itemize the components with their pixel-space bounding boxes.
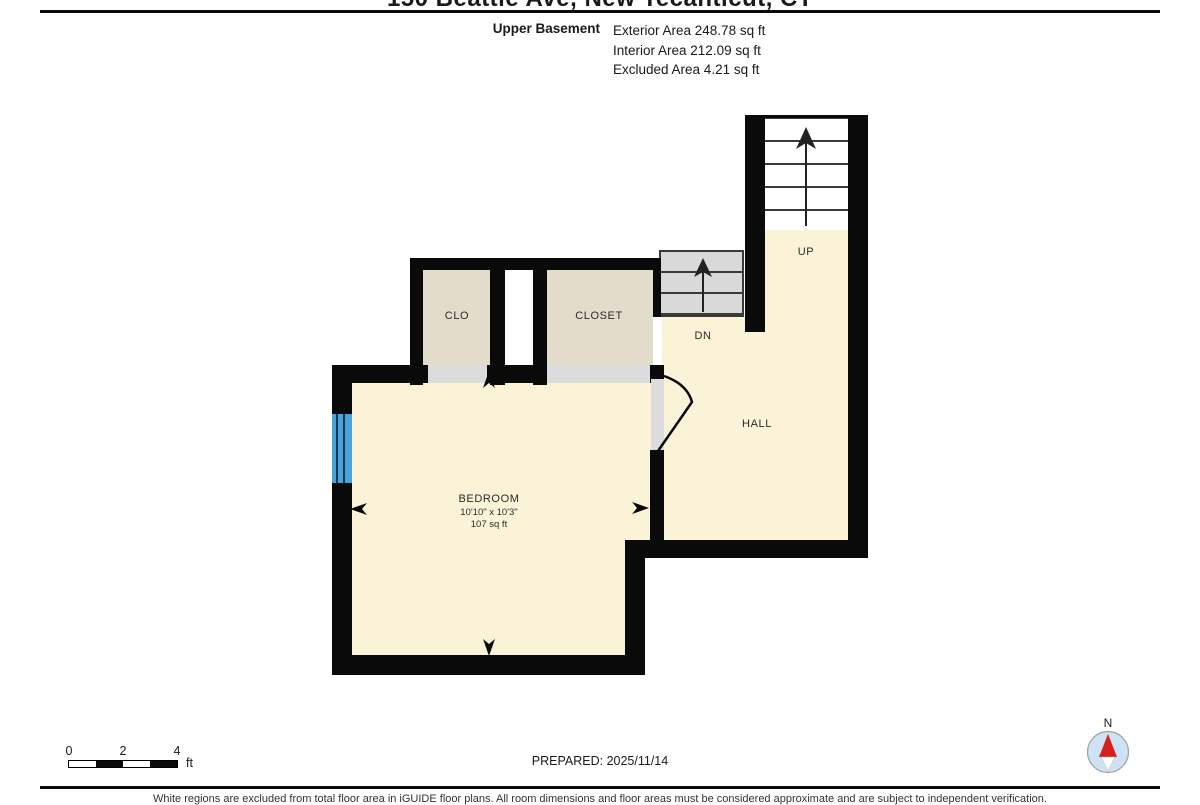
wall-stair-left xyxy=(745,117,765,332)
wall-hall-bottom xyxy=(625,540,868,558)
bedroom-name: BEDROOM xyxy=(389,493,589,507)
disclaimer-text: White regions are excluded from total fl… xyxy=(0,793,1200,805)
footer-divider xyxy=(40,786,1160,789)
scale-segment xyxy=(150,761,177,767)
hall-label: HALL xyxy=(742,418,772,430)
bedroom-window xyxy=(332,410,352,487)
floorplan: CLO CLOSET UP DN HALL BEDROOM 10'10" x 1… xyxy=(0,0,1200,800)
scale-tick-0: 0 xyxy=(66,744,73,758)
window-pane-line xyxy=(343,414,345,483)
stairs-up-label: UP xyxy=(798,246,814,258)
compass-icon xyxy=(1086,730,1130,774)
bedroom-label: BEDROOM 10'10" x 10'3" 107 sq ft xyxy=(389,493,589,531)
wall-bedroom-bottom xyxy=(332,655,645,675)
clo-label: CLO xyxy=(445,310,469,322)
scale-tick-4: 4 xyxy=(174,744,181,758)
bedroom-area: 107 sq ft xyxy=(389,519,589,531)
wall-bedroom-hall-divider xyxy=(650,450,664,540)
stairs-dn-label: DN xyxy=(694,330,711,342)
compass-north-label: N xyxy=(1058,716,1158,730)
bedroom-floor-lower xyxy=(352,540,625,655)
stairs-up-treads xyxy=(765,117,848,230)
bedroom-door-opening xyxy=(651,379,664,450)
wall-bedroom-top-b xyxy=(487,365,547,383)
wall-dn-left xyxy=(653,258,661,317)
prepared-date: PREPARED: 2025/11/14 xyxy=(400,754,800,768)
scale-bar xyxy=(68,760,178,768)
wall-door-stub-top xyxy=(650,365,664,379)
understair-floor xyxy=(765,230,848,316)
bedroom-dimensions: 10'10" x 10'3" xyxy=(389,507,589,519)
stairs-dn-treads xyxy=(659,250,744,317)
scale-unit: ft xyxy=(186,756,193,770)
scale-segment xyxy=(96,761,123,767)
window-pane-line xyxy=(336,414,338,483)
scale-segment xyxy=(123,761,150,767)
excluded-void xyxy=(505,270,533,365)
clo-door-opening xyxy=(428,365,487,383)
closet-door-opening xyxy=(547,365,650,383)
scale-segment xyxy=(69,761,96,767)
wall-bedroom-right-lower xyxy=(625,540,645,675)
scale-tick-2: 2 xyxy=(120,744,127,758)
closet-label: CLOSET xyxy=(575,310,623,322)
wall-stair-right xyxy=(848,117,868,558)
